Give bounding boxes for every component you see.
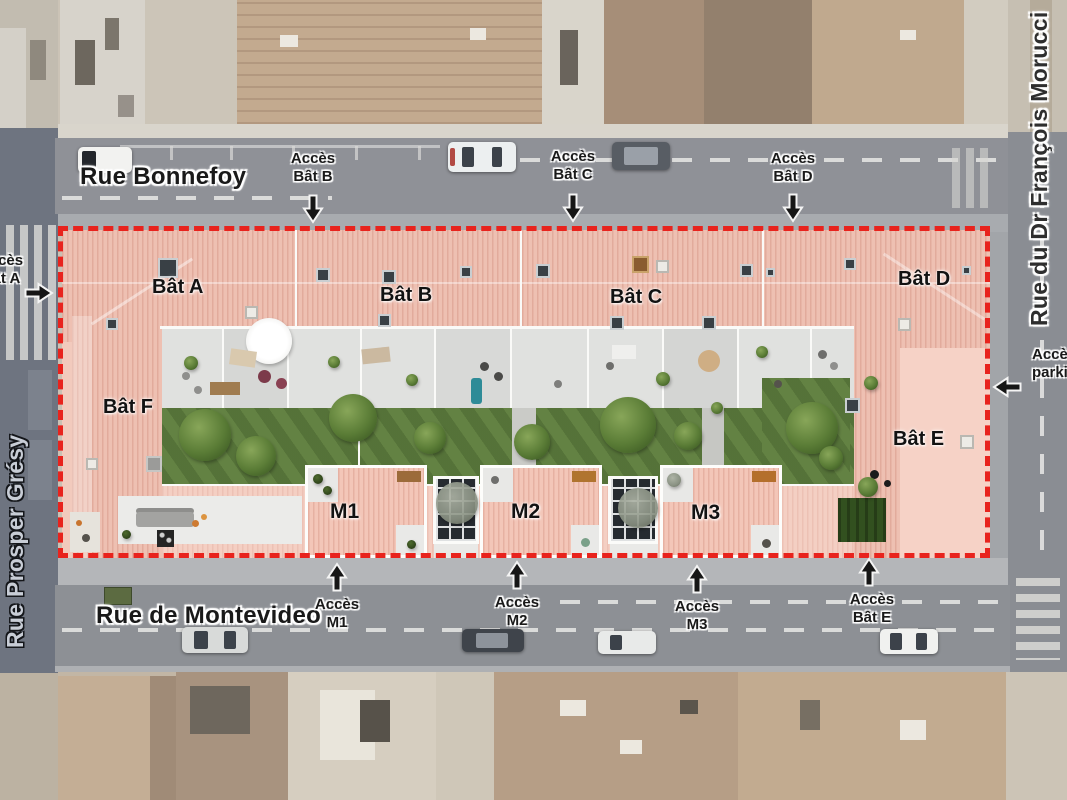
car (448, 142, 516, 172)
access-arrow-up-icon (506, 560, 528, 590)
access-label-m3: AccèsM3 (662, 598, 732, 634)
aerial-roof (237, 0, 542, 124)
aerial-roof (470, 28, 486, 40)
building-label-m2: M2 (511, 500, 540, 524)
aerial-roof (738, 672, 1006, 800)
street-label-bonnefoy: Rue Bonnefoy (80, 163, 246, 191)
street-label-morucci: Rue du Dr François Morucci (1026, 8, 1053, 326)
crosswalk-stripe (6, 225, 14, 360)
building-label-m3: M3 (691, 501, 720, 525)
access-arrow-down-icon (562, 193, 584, 223)
access-label-bat-d: AccèsBât D (758, 150, 828, 186)
aerial-roof (812, 0, 964, 124)
car (880, 629, 938, 654)
street-label-prosper-gresy: Rue Prosper Grésy (2, 378, 29, 648)
access-label-bat-c: AccèsBât C (538, 148, 608, 184)
curb-south (55, 666, 1010, 672)
building-label-bat-a: Bât A (152, 276, 203, 299)
aerial-roof (900, 720, 926, 740)
access-label-bat-e: AccèsBât E (837, 591, 907, 627)
aerial-roof (105, 18, 119, 50)
aerial-roof (75, 40, 95, 85)
aerial-roof (704, 0, 812, 126)
parking-bay (28, 370, 52, 430)
aerial-roof (680, 700, 698, 714)
building-label-bat-b: Bât B (380, 284, 432, 307)
access-arrow-left-icon (992, 376, 1022, 398)
lane-marking (418, 146, 421, 160)
lane-marking (120, 145, 440, 148)
residential-site-plan: Rue Bonnefoy Rue de Montevideo Rue Prosp… (0, 0, 1067, 800)
parking-bay (28, 440, 52, 500)
access-label-m2: AccèsM2 (482, 594, 552, 630)
lane-marking (170, 146, 173, 160)
aerial-roof (436, 672, 494, 800)
aerial-roof (360, 700, 390, 742)
aerial-roof (560, 30, 578, 85)
access-arrow-right-icon (24, 282, 54, 304)
aerial-roof (190, 686, 250, 734)
access-label-parking: Accèsparking (1032, 346, 1067, 382)
aerial-roof (494, 672, 738, 800)
aerial-roof (900, 30, 916, 40)
building-label-bat-e: Bât E (893, 428, 944, 451)
lane-dashed-line (62, 196, 332, 200)
crosswalk (1016, 578, 1060, 660)
aerial-roof (30, 40, 46, 80)
aerial-roof (0, 672, 58, 800)
access-arrow-down-icon (782, 193, 804, 223)
access-label-m1: AccèsM1 (302, 596, 372, 632)
lane-marking (355, 146, 358, 160)
building-label-bat-d: Bât D (898, 268, 950, 291)
access-arrow-down-icon (302, 194, 324, 224)
building-label-m1: M1 (330, 500, 359, 524)
aerial-roof (800, 700, 820, 730)
aerial-roof (560, 700, 586, 716)
crosswalk-stripe (966, 148, 974, 208)
building-label-bat-c: Bât C (610, 286, 662, 309)
car (182, 627, 248, 653)
access-arrow-up-icon (686, 564, 708, 594)
aerial-roof (604, 0, 704, 126)
crosswalk-stripe (952, 148, 960, 208)
car (598, 631, 656, 654)
aerial-roof (150, 676, 178, 800)
aerial-roof (620, 740, 642, 754)
street-label-montevideo: Rue de Montevideo (96, 602, 321, 630)
lane-marking (230, 146, 233, 160)
aerial-roof (280, 35, 298, 47)
car (612, 142, 670, 170)
access-label-bat-b: AccèsBât B (278, 150, 348, 186)
access-arrow-up-icon (326, 562, 348, 592)
building-label-bat-f: Bât F (103, 396, 153, 419)
aerial-roof (1006, 672, 1067, 800)
car (462, 629, 524, 652)
aerial-roof (145, 0, 237, 128)
crosswalk-stripe (980, 148, 988, 208)
lane-dashed-line (560, 600, 1008, 604)
access-arrow-up-icon (858, 557, 880, 587)
aerial-roof (0, 28, 26, 138)
aerial-roof (118, 95, 134, 117)
aerial-roof (964, 0, 1008, 130)
